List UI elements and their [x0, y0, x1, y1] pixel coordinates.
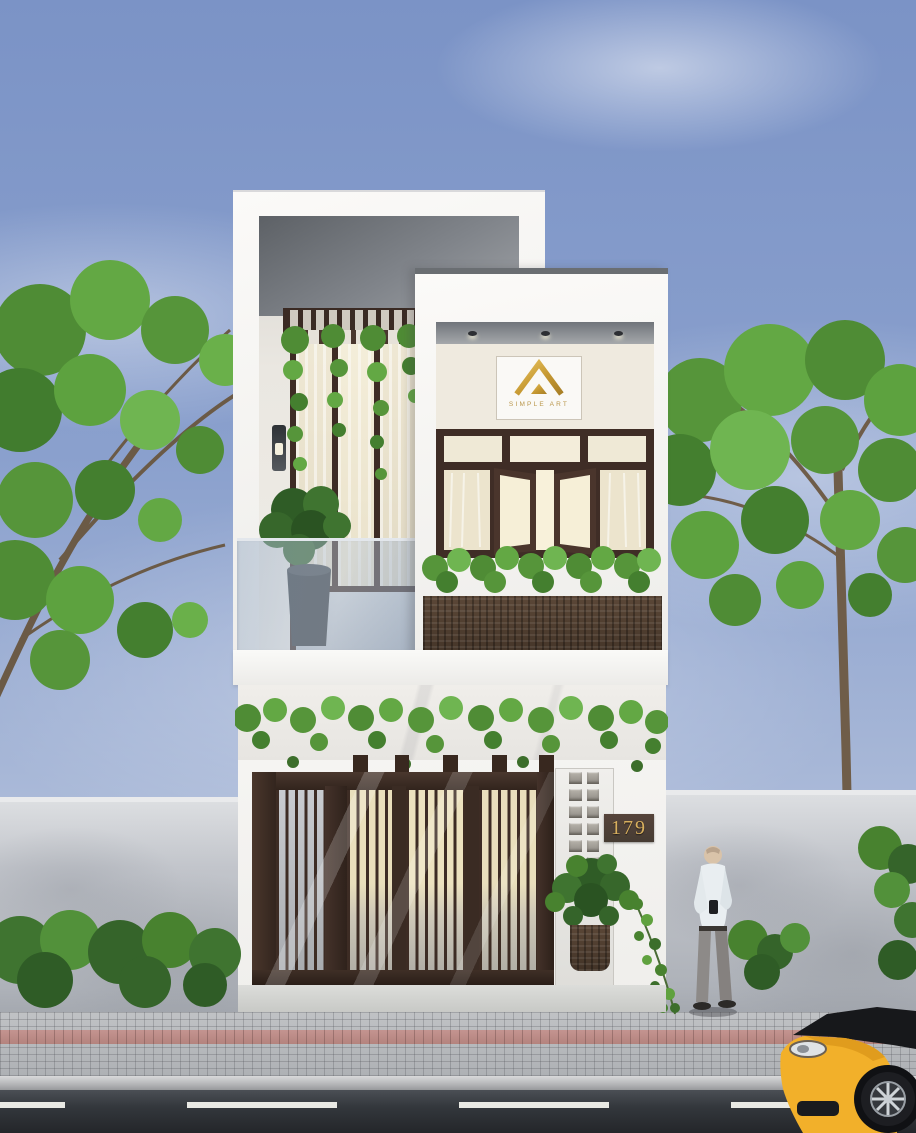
- vent-block: [587, 772, 600, 784]
- front-shrubs: [0, 820, 916, 1020]
- brand-name: SIMPLE ART: [509, 401, 569, 408]
- left-tree-foliage: [0, 260, 251, 690]
- downlight: [614, 331, 623, 336]
- right-tree-foliage: [644, 320, 916, 626]
- brand-monogram-icon: [507, 357, 571, 399]
- car-intake: [797, 1101, 839, 1116]
- architectural-rendering: SIMPLE ART: [0, 0, 916, 1133]
- downlight: [468, 331, 477, 336]
- upper-bay-box: SIMPLE ART: [415, 268, 668, 664]
- yellow-sports-car: [775, 1005, 916, 1133]
- shoe: [718, 1000, 736, 1008]
- shoe: [693, 1002, 711, 1010]
- phone: [709, 900, 718, 914]
- man-with-phone: [682, 842, 744, 1017]
- main-window: [436, 429, 654, 558]
- brand-sign: SIMPLE ART: [496, 356, 582, 420]
- vent-block: [587, 789, 600, 801]
- bay-soffit: [436, 322, 654, 344]
- window-bay: SIMPLE ART: [436, 322, 654, 558]
- vent-block: [569, 789, 582, 801]
- vent-block: [569, 806, 582, 818]
- belt: [699, 926, 727, 931]
- balcony-glass-railing: [237, 538, 419, 661]
- vent-block: [569, 772, 582, 784]
- man-trousers: [696, 931, 711, 1002]
- floor-divider-fascia: [233, 650, 668, 685]
- vent-block: [587, 806, 600, 818]
- downlight: [541, 331, 550, 336]
